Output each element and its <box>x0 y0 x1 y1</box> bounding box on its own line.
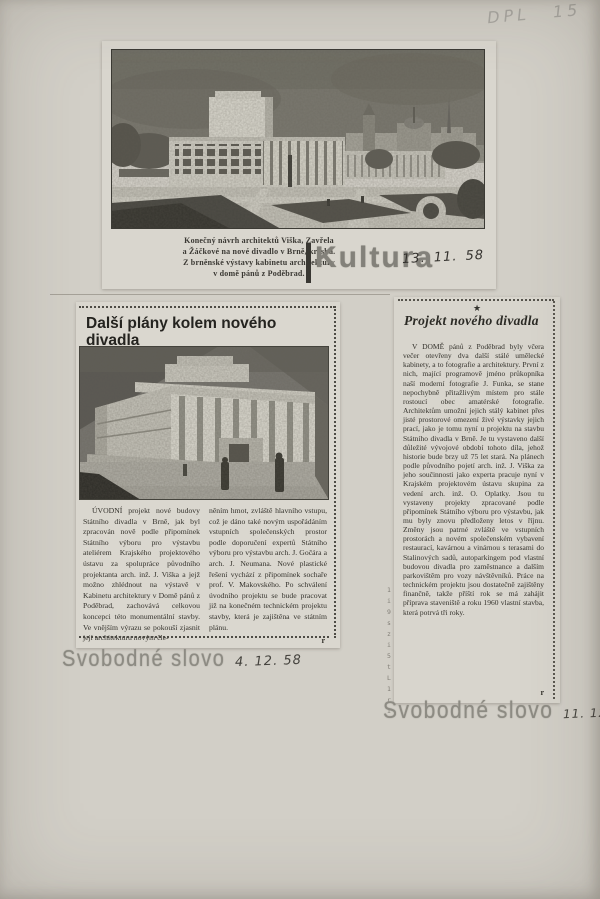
author-signature: r <box>540 688 544 697</box>
dotted-border-right <box>334 306 336 638</box>
fold-line <box>50 294 390 295</box>
theatre-drawing-image <box>111 49 485 229</box>
pencil-annotation: DPL 15 <box>486 0 600 27</box>
dotted-border-right <box>553 301 555 699</box>
right-clipping-body: V DOMĚ pánů z Poděbrad byly včera večer … <box>403 342 544 617</box>
dotted-border-bottom <box>79 636 329 638</box>
kultura-divider-bar <box>306 243 311 283</box>
newspaper-name-stamp: Svobodné slovo <box>383 698 553 722</box>
left-clipping-column-2: něním hmot, zvláště hlavního vstupu, což… <box>209 506 327 633</box>
scanned-archive-page: DPL 15 <box>0 0 600 899</box>
handwritten-date-stamp-2: 11. 12. 58 <box>563 705 600 721</box>
right-clipping-headline: Projekt nového divadla <box>404 314 552 329</box>
theatre-perspective-art <box>79 346 329 500</box>
right-clipping: 1 i 9 s z i 5 t L 1 r i ★ Projekt nového… <box>394 297 560 703</box>
left-clipping-column-1: ÚVODNÍ projekt nové budovy Státního diva… <box>83 506 200 644</box>
theatre-drawing-art <box>111 49 485 229</box>
theatre-perspective-image <box>79 346 329 500</box>
handwritten-date-stamp-1: 4. 12. 58 <box>235 653 302 670</box>
svobodne-slovo-stamp-2: Svobodné slovo 11. 12. 58 <box>383 700 600 722</box>
left-clipping-column-2-wrap: něním hmot, zvláště hlavního vstupu, což… <box>209 506 327 644</box>
newspaper-name-stamp: Svobodné slovo <box>62 648 225 671</box>
left-clipping-headline: Další plány kolem nového divadla <box>86 315 322 349</box>
left-clipping-body: ÚVODNÍ projekt nové budovy Státního diva… <box>83 506 327 644</box>
left-clipping: Další plány kolem nového divadla <box>76 302 340 648</box>
dotted-border-top <box>398 299 554 301</box>
svobodne-slovo-stamp-1: Svobodné slovo 4. 12. 58 <box>62 649 302 670</box>
dotted-border-top <box>79 306 335 308</box>
